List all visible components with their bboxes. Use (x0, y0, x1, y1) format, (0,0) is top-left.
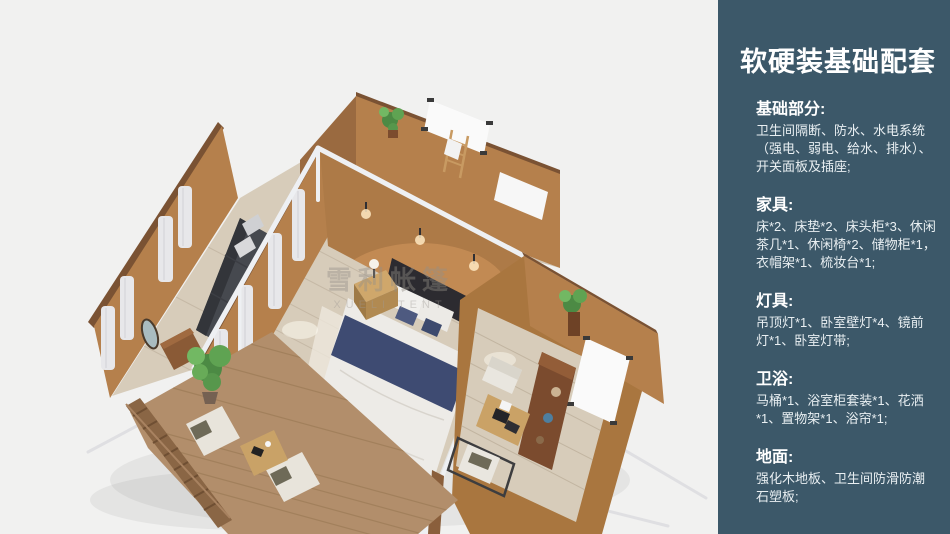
spec-sections: 基础部分: 卫生间隔断、防水、水电系统（强电、弱电、给水、排水）、开关面板及插座… (756, 95, 936, 506)
floorplan-render-area: 雪利帐篷 XUELI TENT (0, 0, 718, 534)
section-body: 马桶*1、浴室柜套装*1、花洒*1、置物架*1、浴帘*1; (756, 392, 936, 428)
slide: 雪利帐篷 XUELI TENT 软硬装基础配套 基础部分: 卫生间隔断、防水、水… (0, 0, 950, 534)
spec-panel: 软硬装基础配套 基础部分: 卫生间隔断、防水、水电系统（强电、弱电、给水、排水）… (718, 0, 950, 534)
section-body: 卫生间隔断、防水、水电系统（强电、弱电、给水、排水）、开关面板及插座; (756, 122, 936, 176)
spec-section-bathroom: 卫浴: 马桶*1、浴室柜套装*1、花洒*1、置物架*1、浴帘*1; (756, 365, 936, 428)
spec-section-basics: 基础部分: 卫生间隔断、防水、水电系统（强电、弱电、给水、排水）、开关面板及插座… (756, 95, 936, 176)
section-body: 床*2、床垫*2、床头柜*3、休闲茶几*1、休闲椅*2、储物柜*1，衣帽架*1、… (756, 218, 936, 272)
section-heading: 灯具: (756, 287, 936, 311)
section-body: 吊顶灯*1、卧室壁灯*4、镜前灯*1、卧室灯带; (756, 314, 936, 350)
section-body: 强化木地板、卫生间防滑防潮石塑板; (756, 470, 936, 506)
spec-section-furniture: 家具: 床*2、床垫*2、床头柜*3、休闲茶几*1、休闲椅*2、储物柜*1，衣帽… (756, 191, 936, 272)
section-heading: 家具: (756, 191, 936, 215)
section-heading: 地面: (756, 443, 936, 467)
spec-section-lighting: 灯具: 吊顶灯*1、卧室壁灯*4、镜前灯*1、卧室灯带; (756, 287, 936, 350)
floorplan-3d-render (0, 0, 718, 534)
section-heading: 基础部分: (756, 95, 936, 119)
section-heading: 卫浴: (756, 365, 936, 389)
panel-title: 软硬装基础配套 (740, 46, 942, 80)
spec-section-flooring: 地面: 强化木地板、卫生间防滑防潮石塑板; (756, 443, 936, 506)
